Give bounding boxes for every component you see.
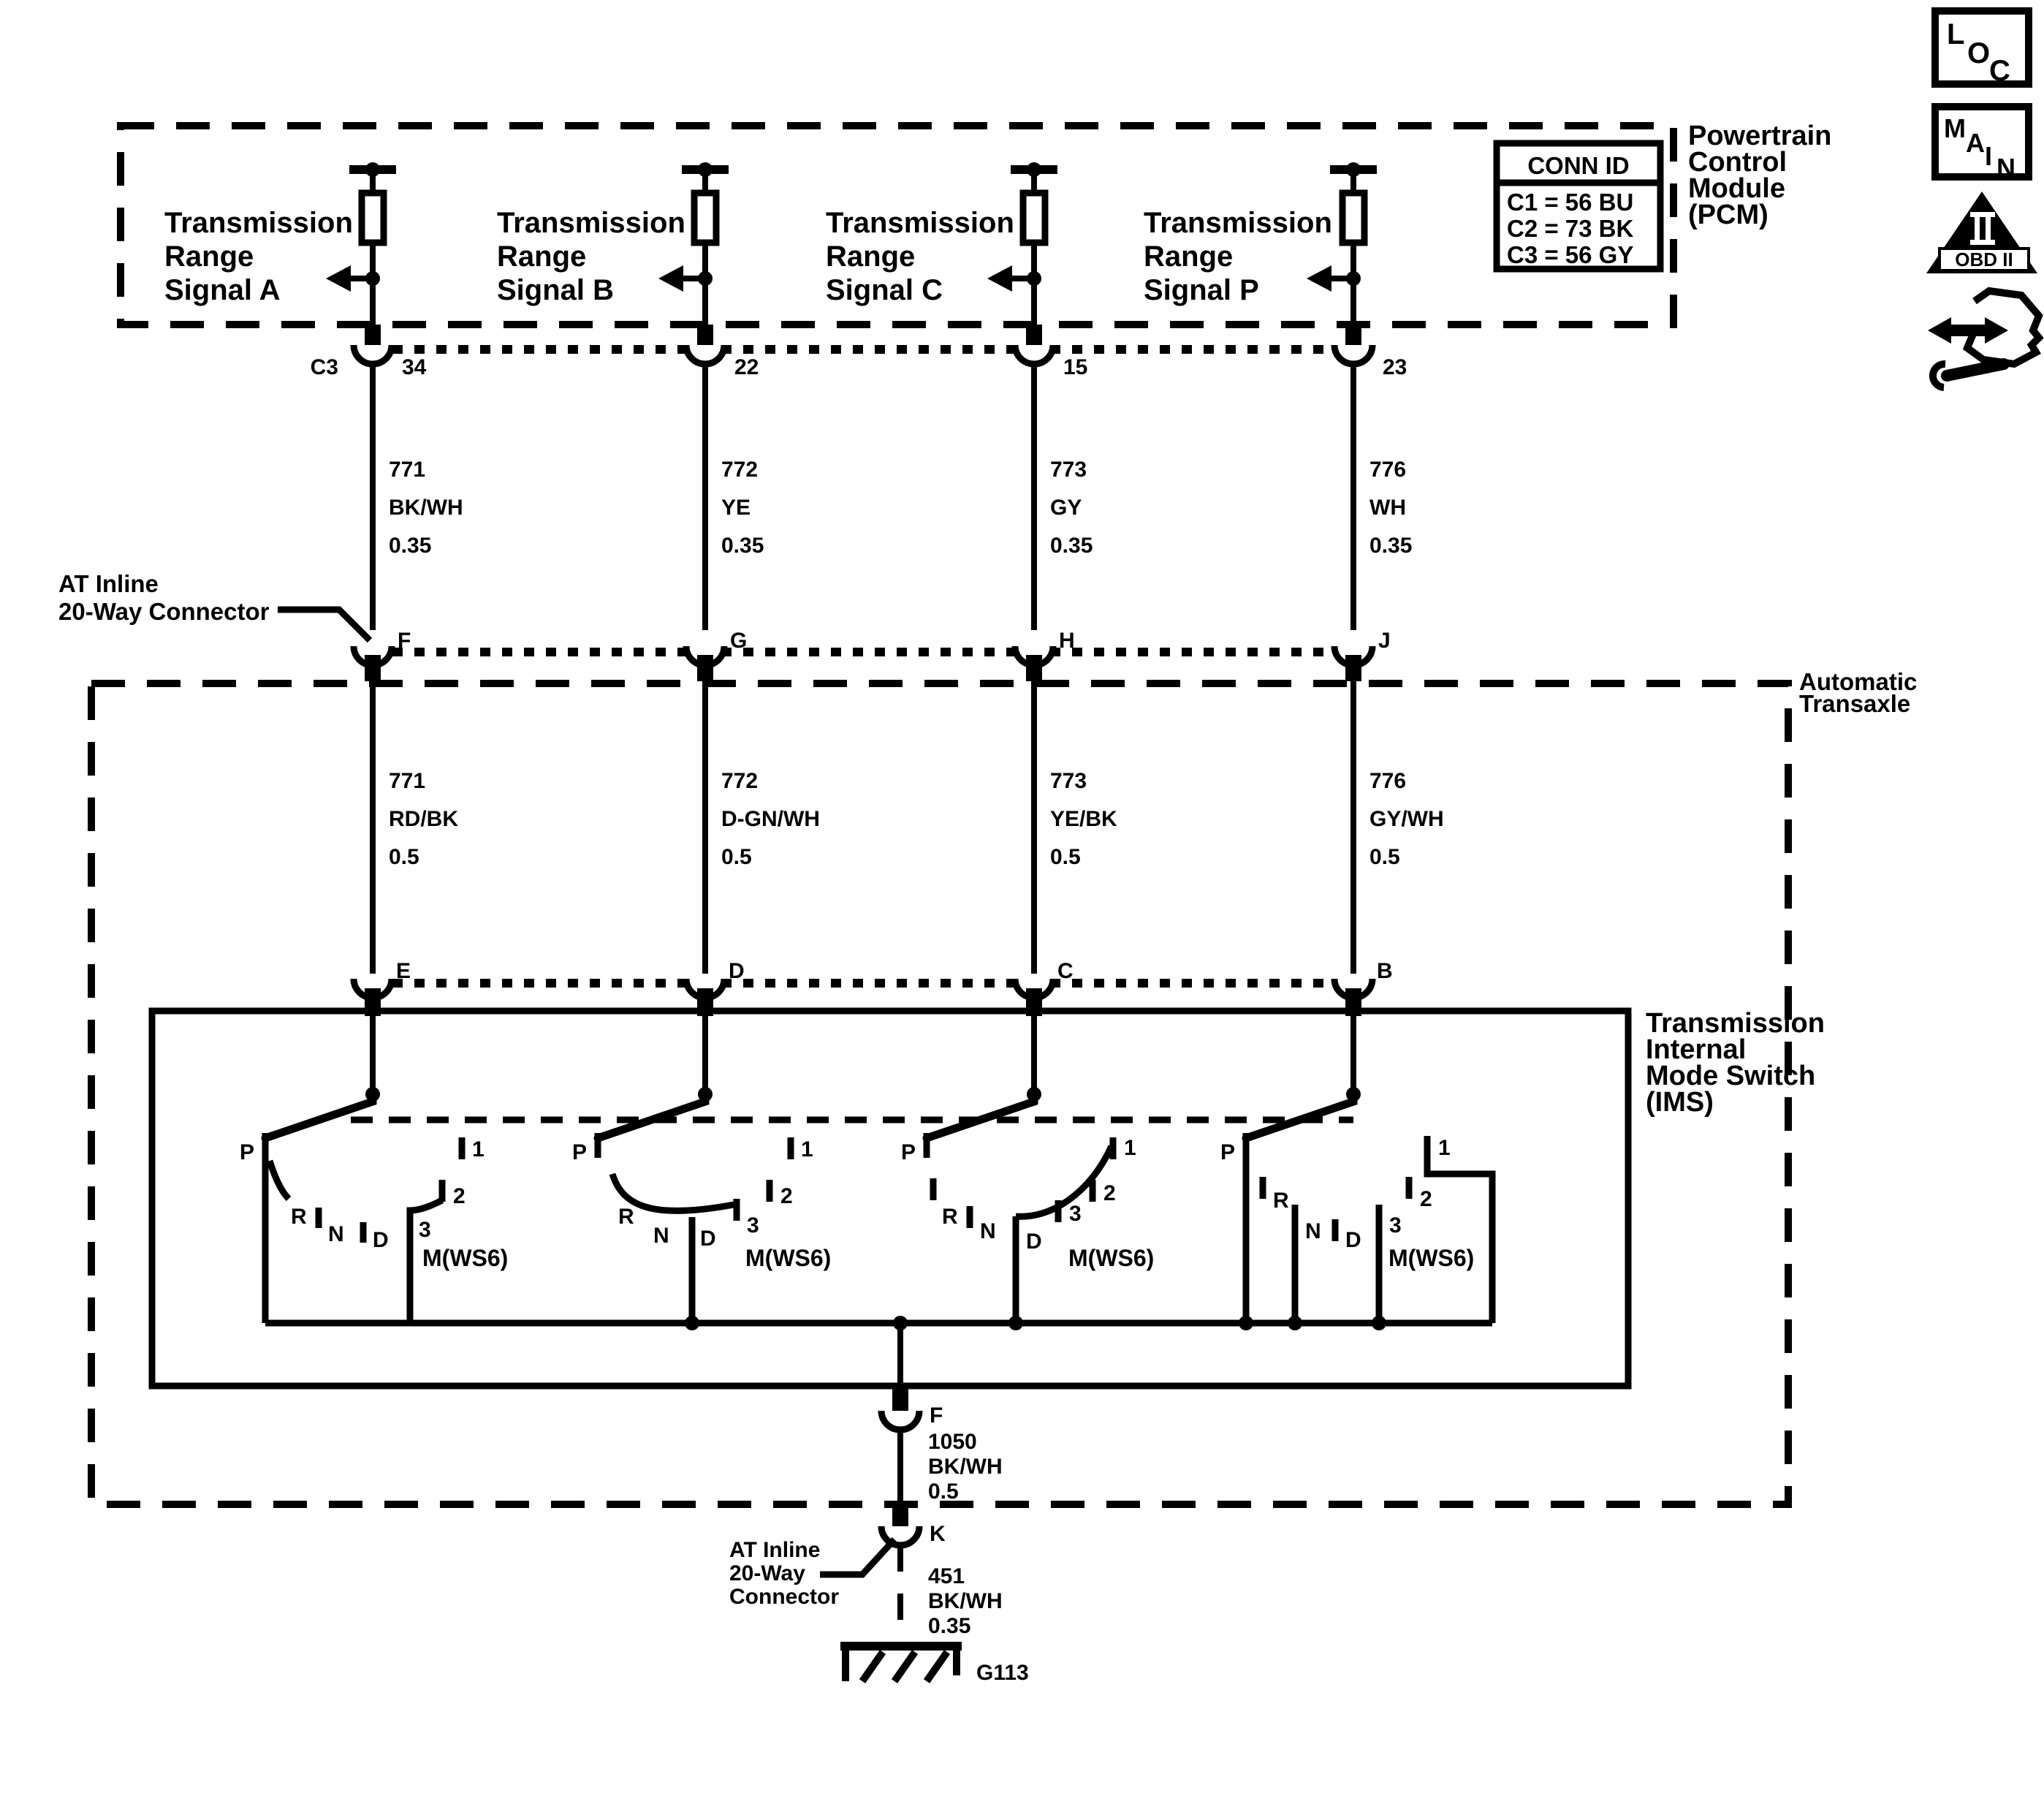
main-letter: A (1966, 128, 1985, 158)
signal-label: Signal A (164, 274, 281, 306)
wire-circuit: 451 (928, 1564, 965, 1588)
loc-letter: C (1989, 55, 2010, 87)
obd2-pillar-icon (1970, 212, 1995, 217)
position-label-n: N (653, 1224, 669, 1248)
loc-letter: O (1967, 37, 1990, 69)
position-label-r: R (942, 1205, 958, 1229)
mode-label: M(WS6) (422, 1245, 508, 1271)
ims-switch-3: P R N D 1 2 3 M(WS6) (901, 1087, 1154, 1330)
signal-label: Signal C (826, 274, 943, 306)
connector-cup-icon (881, 1526, 919, 1545)
junction-dot (1372, 1316, 1386, 1330)
callout-label: Connector (729, 1585, 839, 1609)
wire-circuit: 776 (1369, 458, 1406, 482)
callout-label: 20-Way Connector (58, 598, 270, 625)
signal-label: Signal B (497, 274, 614, 306)
callout-leader-line (820, 1539, 894, 1575)
wrench-icon (1947, 364, 2004, 376)
position-label-1: 1 (1124, 1136, 1136, 1160)
position-label-n: N (1305, 1219, 1321, 1243)
wire-color: BK/WH (928, 1455, 1003, 1479)
position-label-3: 3 (1069, 1202, 1082, 1226)
ims-pin-letter: D (729, 959, 745, 983)
wire-circuit: 1050 (928, 1430, 977, 1454)
conn-id-table: CONN ID C1 = 56 BU C2 = 73 BK C3 = 56 GY (1497, 143, 1660, 269)
wiper-arm (598, 1094, 705, 1138)
contact-arc (1016, 1146, 1112, 1216)
obd2-pillar-icon (1986, 217, 1991, 240)
position-label-n: N (328, 1222, 344, 1246)
inline-pin-letter: G (730, 629, 747, 653)
at-inline-connector-callout-top: AT Inline 20-Way Connector (58, 570, 370, 640)
ground-hatch-icon (862, 1652, 883, 1681)
signal-label: Signal P (1144, 274, 1259, 306)
position-label-r: R (291, 1205, 307, 1229)
wire-circuit: 772 (721, 458, 758, 482)
wire-color: GY/WH (1369, 807, 1444, 831)
signal-arrow-icon (987, 265, 1012, 292)
conn-id-row: C1 = 56 BU (1507, 189, 1633, 216)
wire-color: YE (721, 496, 751, 520)
ground-id-label: G113 (976, 1661, 1029, 1685)
main-letter: N (1996, 153, 2015, 183)
position-label-n: N (980, 1219, 996, 1243)
signal-label: Range (497, 240, 586, 273)
ground-hatch-icon (894, 1652, 915, 1681)
mode-label: M(WS6) (1388, 1245, 1474, 1271)
wire-color: GY (1050, 496, 1082, 520)
position-label-3: 3 (419, 1218, 431, 1242)
position-label-2: 2 (1420, 1187, 1432, 1211)
ims-out-pin-letter: F (930, 1403, 943, 1428)
ground-return-path: F 1050 BK/WH 0.5 K AT Inline 20-Way Conn… (729, 1316, 1029, 1685)
pcm-label: (PCM) (1688, 200, 1768, 230)
connector-cup-icon (354, 345, 392, 364)
position-label-p: P (240, 1140, 254, 1164)
obd2-label: OBD II (1955, 249, 2013, 270)
inline-pin-letter: J (1378, 629, 1391, 653)
wire-circuit: 771 (389, 769, 425, 793)
position-label-2: 2 (780, 1184, 793, 1208)
pcm-pin-number: 34 (402, 355, 427, 379)
wire-gauge: 0.5 (1369, 845, 1400, 869)
signal-a-circuit: Transmission Range Signal A C3 34 771 BK… (164, 162, 463, 1094)
ims-pin-letter: B (1377, 959, 1393, 983)
position-label-2: 2 (1103, 1181, 1116, 1205)
position-label-d: D (1026, 1229, 1042, 1254)
wire-gauge: 0.5 (928, 1479, 959, 1504)
wire-color: D-GN/WH (721, 807, 820, 831)
ims-switch-2: P R N D 1 2 3 M(WS6) (572, 1087, 831, 1330)
wire-circuit: 773 (1050, 458, 1087, 482)
wire-gauge: 0.35 (721, 534, 764, 558)
obd2-badge: OBD II (1926, 192, 2037, 273)
position-label-2: 2 (453, 1184, 466, 1208)
wire-color: WH (1369, 496, 1406, 520)
ims-switch-box: Transmission Internal Mode Switch (IMS) … (152, 1008, 1825, 1386)
mode-label: M(WS6) (745, 1245, 831, 1271)
contact-1-line (1427, 1159, 1492, 1323)
conn-id-row: C2 = 73 BK (1507, 215, 1633, 242)
connector-cup-icon (1015, 345, 1053, 364)
junction-dot (685, 1316, 699, 1330)
loc-letter: L (1947, 18, 1964, 50)
contact-arc (270, 1161, 289, 1199)
position-label-p: P (901, 1140, 916, 1164)
position-label-d: D (373, 1228, 389, 1252)
signal-arrow-icon (326, 265, 351, 292)
signal-label: Range (826, 240, 915, 273)
connector-cup-icon (686, 345, 724, 364)
transaxle-boundary (91, 683, 1788, 1504)
position-label-d: D (700, 1227, 716, 1251)
wire-circuit: 772 (721, 769, 758, 793)
signal-label: Range (164, 240, 254, 273)
wire-gauge: 0.5 (1050, 845, 1081, 869)
ims-pin-letter: C (1057, 959, 1074, 983)
position-label-r: R (1273, 1189, 1289, 1213)
wire-gauge: 0.35 (389, 534, 431, 558)
signal-label: Transmission (826, 207, 1014, 239)
wiper-arm (927, 1094, 1034, 1138)
wire-color: YE/BK (1050, 807, 1117, 831)
resistor-icon (1023, 193, 1045, 243)
main-letter: I (1985, 141, 1992, 171)
wiring-diagram-page: L O C M A I N OBD II Powertrain Control … (0, 0, 2044, 1811)
wire-gauge: 0.35 (1050, 534, 1093, 558)
signal-label: Transmission (497, 207, 685, 239)
resistor-icon (694, 193, 716, 243)
pcm-pin-number: 22 (734, 355, 759, 379)
signal-label: Range (1144, 240, 1233, 273)
wire-circuit: 776 (1369, 769, 1406, 793)
junction-dot (1288, 1316, 1302, 1330)
ims-wiring-diagram: L O C M A I N OBD II Powertrain Control … (0, 0, 2044, 1811)
connector-cup-icon (1334, 345, 1372, 364)
pcm-pin-number: 15 (1063, 355, 1087, 379)
signal-arrow-icon (658, 265, 683, 292)
ground-hatch-icon (927, 1652, 947, 1681)
position-label-p: P (1220, 1140, 1235, 1164)
inline-pin-letter: K (930, 1522, 946, 1546)
wire-color: RD/BK (389, 807, 458, 831)
wire-color: BK/WH (389, 496, 463, 520)
signal-c-circuit: Transmission Range Signal C 15 773 GY 0.… (826, 162, 1117, 1094)
wire-gauge: 0.35 (928, 1614, 970, 1638)
wire-color: BK/WH (928, 1589, 1003, 1613)
callout-leader-line (278, 610, 370, 640)
wire-gauge: 0.5 (389, 845, 419, 869)
resistor-icon (362, 193, 384, 243)
position-label-1: 1 (1438, 1136, 1451, 1160)
junction-dot (1008, 1316, 1023, 1330)
wire-circuit: 771 (389, 458, 425, 482)
obd2-pillar-icon (1975, 217, 1980, 240)
connector-cup-icon (881, 1411, 919, 1430)
position-label-r: R (618, 1205, 634, 1229)
position-label-3: 3 (747, 1213, 759, 1238)
signal-arrow-icon (1307, 265, 1331, 292)
at-inline-connector-callout-bottom: AT Inline 20-Way Connector (729, 1538, 894, 1609)
pcm-connector-id: C3 (311, 355, 338, 379)
conn-id-row: C3 = 56 GY (1507, 241, 1633, 268)
signal-label: Transmission (1144, 207, 1332, 239)
loc-badge: L O C (1935, 11, 2029, 87)
wire-gauge: 0.35 (1369, 534, 1412, 558)
position-label-1: 1 (801, 1137, 813, 1162)
pcm-pin-number: 23 (1383, 355, 1407, 379)
obd2-pillar-icon (1970, 240, 1995, 245)
signal-b-circuit: Transmission Range Signal B 22 772 YE 0.… (497, 162, 820, 1094)
signal-label: Transmission (164, 207, 353, 239)
service-info-badge (1928, 291, 2039, 387)
ims-switch-4: P R N D 3 2 1 M(WS6) (1220, 1087, 1492, 1330)
signal-p-circuit: Transmission Range Signal P 23 776 WH 0.… (1144, 162, 1444, 1094)
transaxle-label: Transaxle (1799, 690, 1910, 717)
wiper-arm (265, 1094, 373, 1138)
main-letter: M (1944, 113, 1966, 143)
position-label-d: D (1345, 1228, 1361, 1252)
position-label-3: 3 (1389, 1213, 1402, 1238)
ims-pin-letter: E (396, 959, 411, 983)
callout-label: 20-Way (729, 1561, 805, 1585)
wire-circuit: 773 (1050, 769, 1087, 793)
ims-label: (IMS) (1646, 1087, 1714, 1118)
junction-dot (1239, 1316, 1253, 1330)
inline-pin-letter: F (398, 629, 411, 653)
conn-id-header: CONN ID (1527, 152, 1629, 179)
position-label-1: 1 (472, 1137, 485, 1162)
callout-label: AT Inline (58, 570, 159, 597)
wire-gauge: 0.5 (721, 845, 752, 869)
wiper-arm (1246, 1094, 1353, 1138)
automatic-transaxle: Automatic Transaxle (91, 668, 1917, 1504)
mode-label: M(WS6) (1068, 1245, 1154, 1271)
callout-label: AT Inline (729, 1538, 820, 1562)
position-label-p: P (572, 1140, 587, 1164)
resistor-icon (1342, 193, 1364, 243)
ground-symbol (840, 1646, 962, 1681)
main-badge: M A I N (1935, 107, 2029, 183)
inline-pin-letter: H (1059, 629, 1075, 653)
